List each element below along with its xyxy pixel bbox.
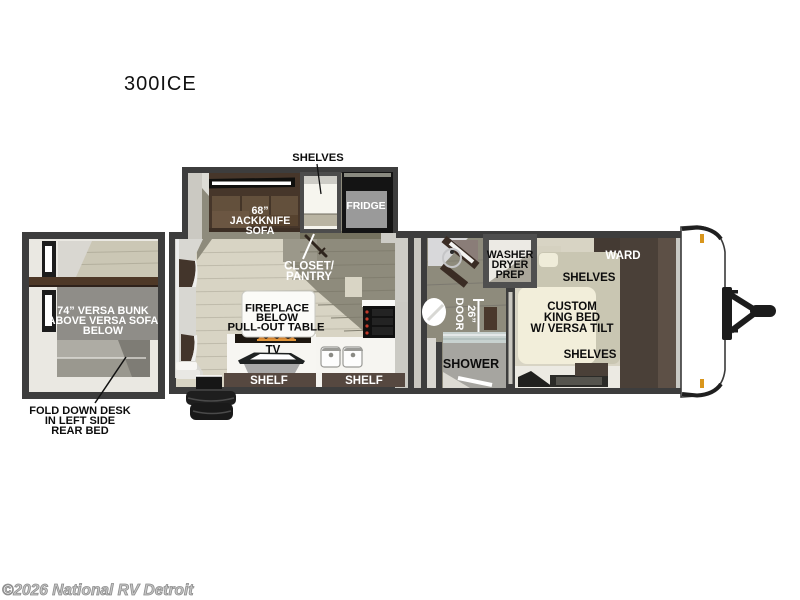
svg-text:W/ VERSA TILT: W/ VERSA TILT <box>530 323 613 335</box>
svg-text:SHOWER: SHOWER <box>443 357 499 371</box>
svg-text:PREP: PREP <box>496 269 525 281</box>
svg-text:SHELVES: SHELVES <box>563 272 616 284</box>
svg-text:SHELF: SHELF <box>345 375 383 387</box>
svg-text:SHELF: SHELF <box>250 375 288 387</box>
svg-text:SHELVES: SHELVES <box>292 152 344 164</box>
svg-text:FRIDGE: FRIDGE <box>346 201 385 212</box>
svg-text:WARD: WARD <box>605 250 640 262</box>
svg-text:PULL-OUT TABLE: PULL-OUT TABLE <box>227 322 325 334</box>
svg-text:©2026 National RV Detroit: ©2026 National RV Detroit <box>2 582 194 599</box>
svg-text:26”: 26” <box>465 305 477 323</box>
svg-text:REAR BED: REAR BED <box>51 425 109 437</box>
svg-text:SOFA: SOFA <box>246 225 275 237</box>
svg-text:DOOR: DOOR <box>453 298 465 331</box>
svg-text:PANTRY: PANTRY <box>286 271 332 283</box>
svg-text:SHELVES: SHELVES <box>564 349 617 361</box>
svg-text:BELOW: BELOW <box>83 325 124 337</box>
svg-text:300ICE: 300ICE <box>124 73 197 95</box>
